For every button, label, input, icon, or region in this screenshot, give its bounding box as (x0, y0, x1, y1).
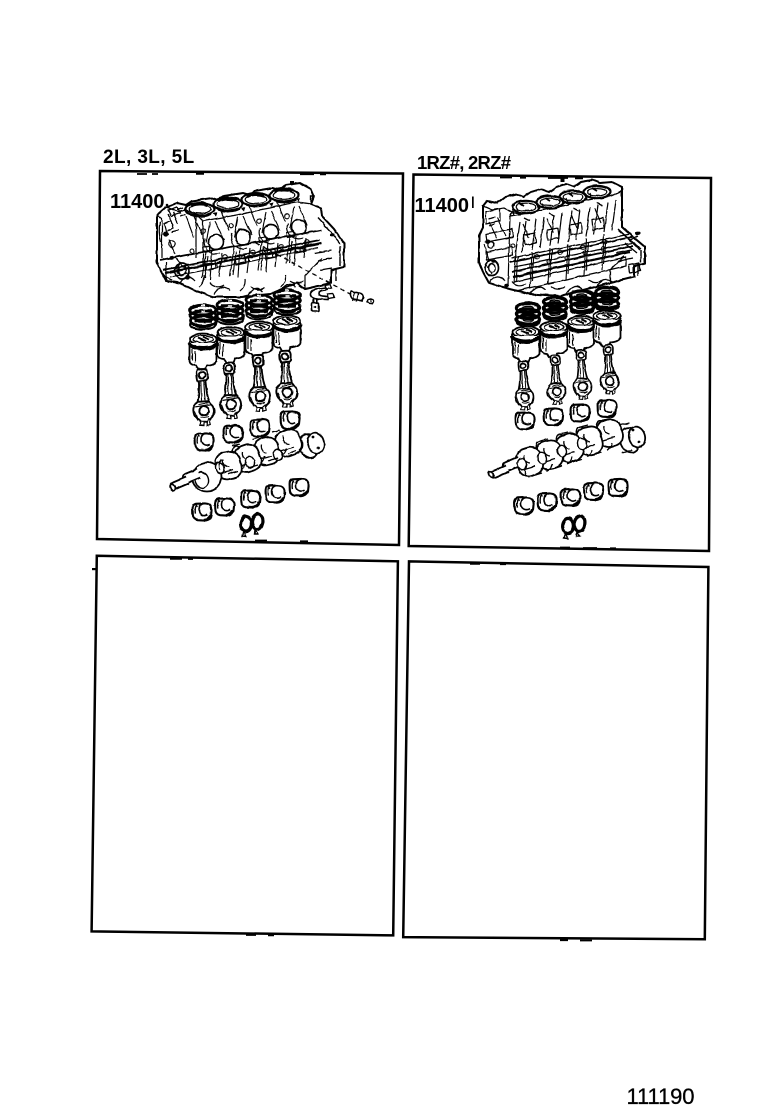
svg-text:11400: 11400 (110, 191, 165, 213)
svg-text:11400: 11400 (415, 195, 470, 217)
svg-text:1RZ#, 2RZ#: 1RZ#, 2RZ# (417, 152, 511, 173)
svg-text:111190: 111190 (627, 1084, 695, 1109)
svg-text:2L, 3L, 5L: 2L, 3L, 5L (103, 147, 195, 168)
